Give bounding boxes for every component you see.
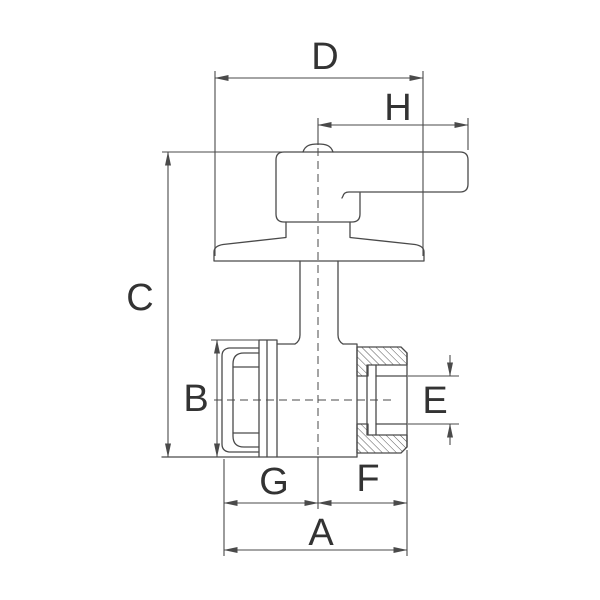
dimension-labels: D H C B E G F A bbox=[126, 36, 447, 554]
dim-label-C: C bbox=[126, 277, 153, 319]
dim-label-H: H bbox=[384, 87, 411, 129]
handle-lever bbox=[333, 152, 468, 198]
outlet-bore-lines bbox=[376, 376, 407, 424]
thread-section-bottom bbox=[357, 424, 407, 453]
dim-label-G: G bbox=[259, 461, 289, 503]
thread-section-top bbox=[357, 347, 407, 376]
dim-label-D: D bbox=[311, 36, 338, 78]
dim-label-E: E bbox=[422, 380, 447, 422]
valve-stem bbox=[295, 261, 343, 344]
valve-drawing-svg: D H C B E G F A bbox=[0, 0, 600, 600]
bonnet-flange bbox=[214, 238, 424, 262]
dim-label-B: B bbox=[183, 378, 208, 420]
dim-label-F: F bbox=[356, 458, 379, 500]
technical-drawing-canvas: D H C B E G F A bbox=[0, 0, 600, 600]
dim-label-A: A bbox=[308, 512, 334, 554]
centerlines bbox=[214, 148, 392, 457]
collar-band bbox=[259, 340, 277, 457]
